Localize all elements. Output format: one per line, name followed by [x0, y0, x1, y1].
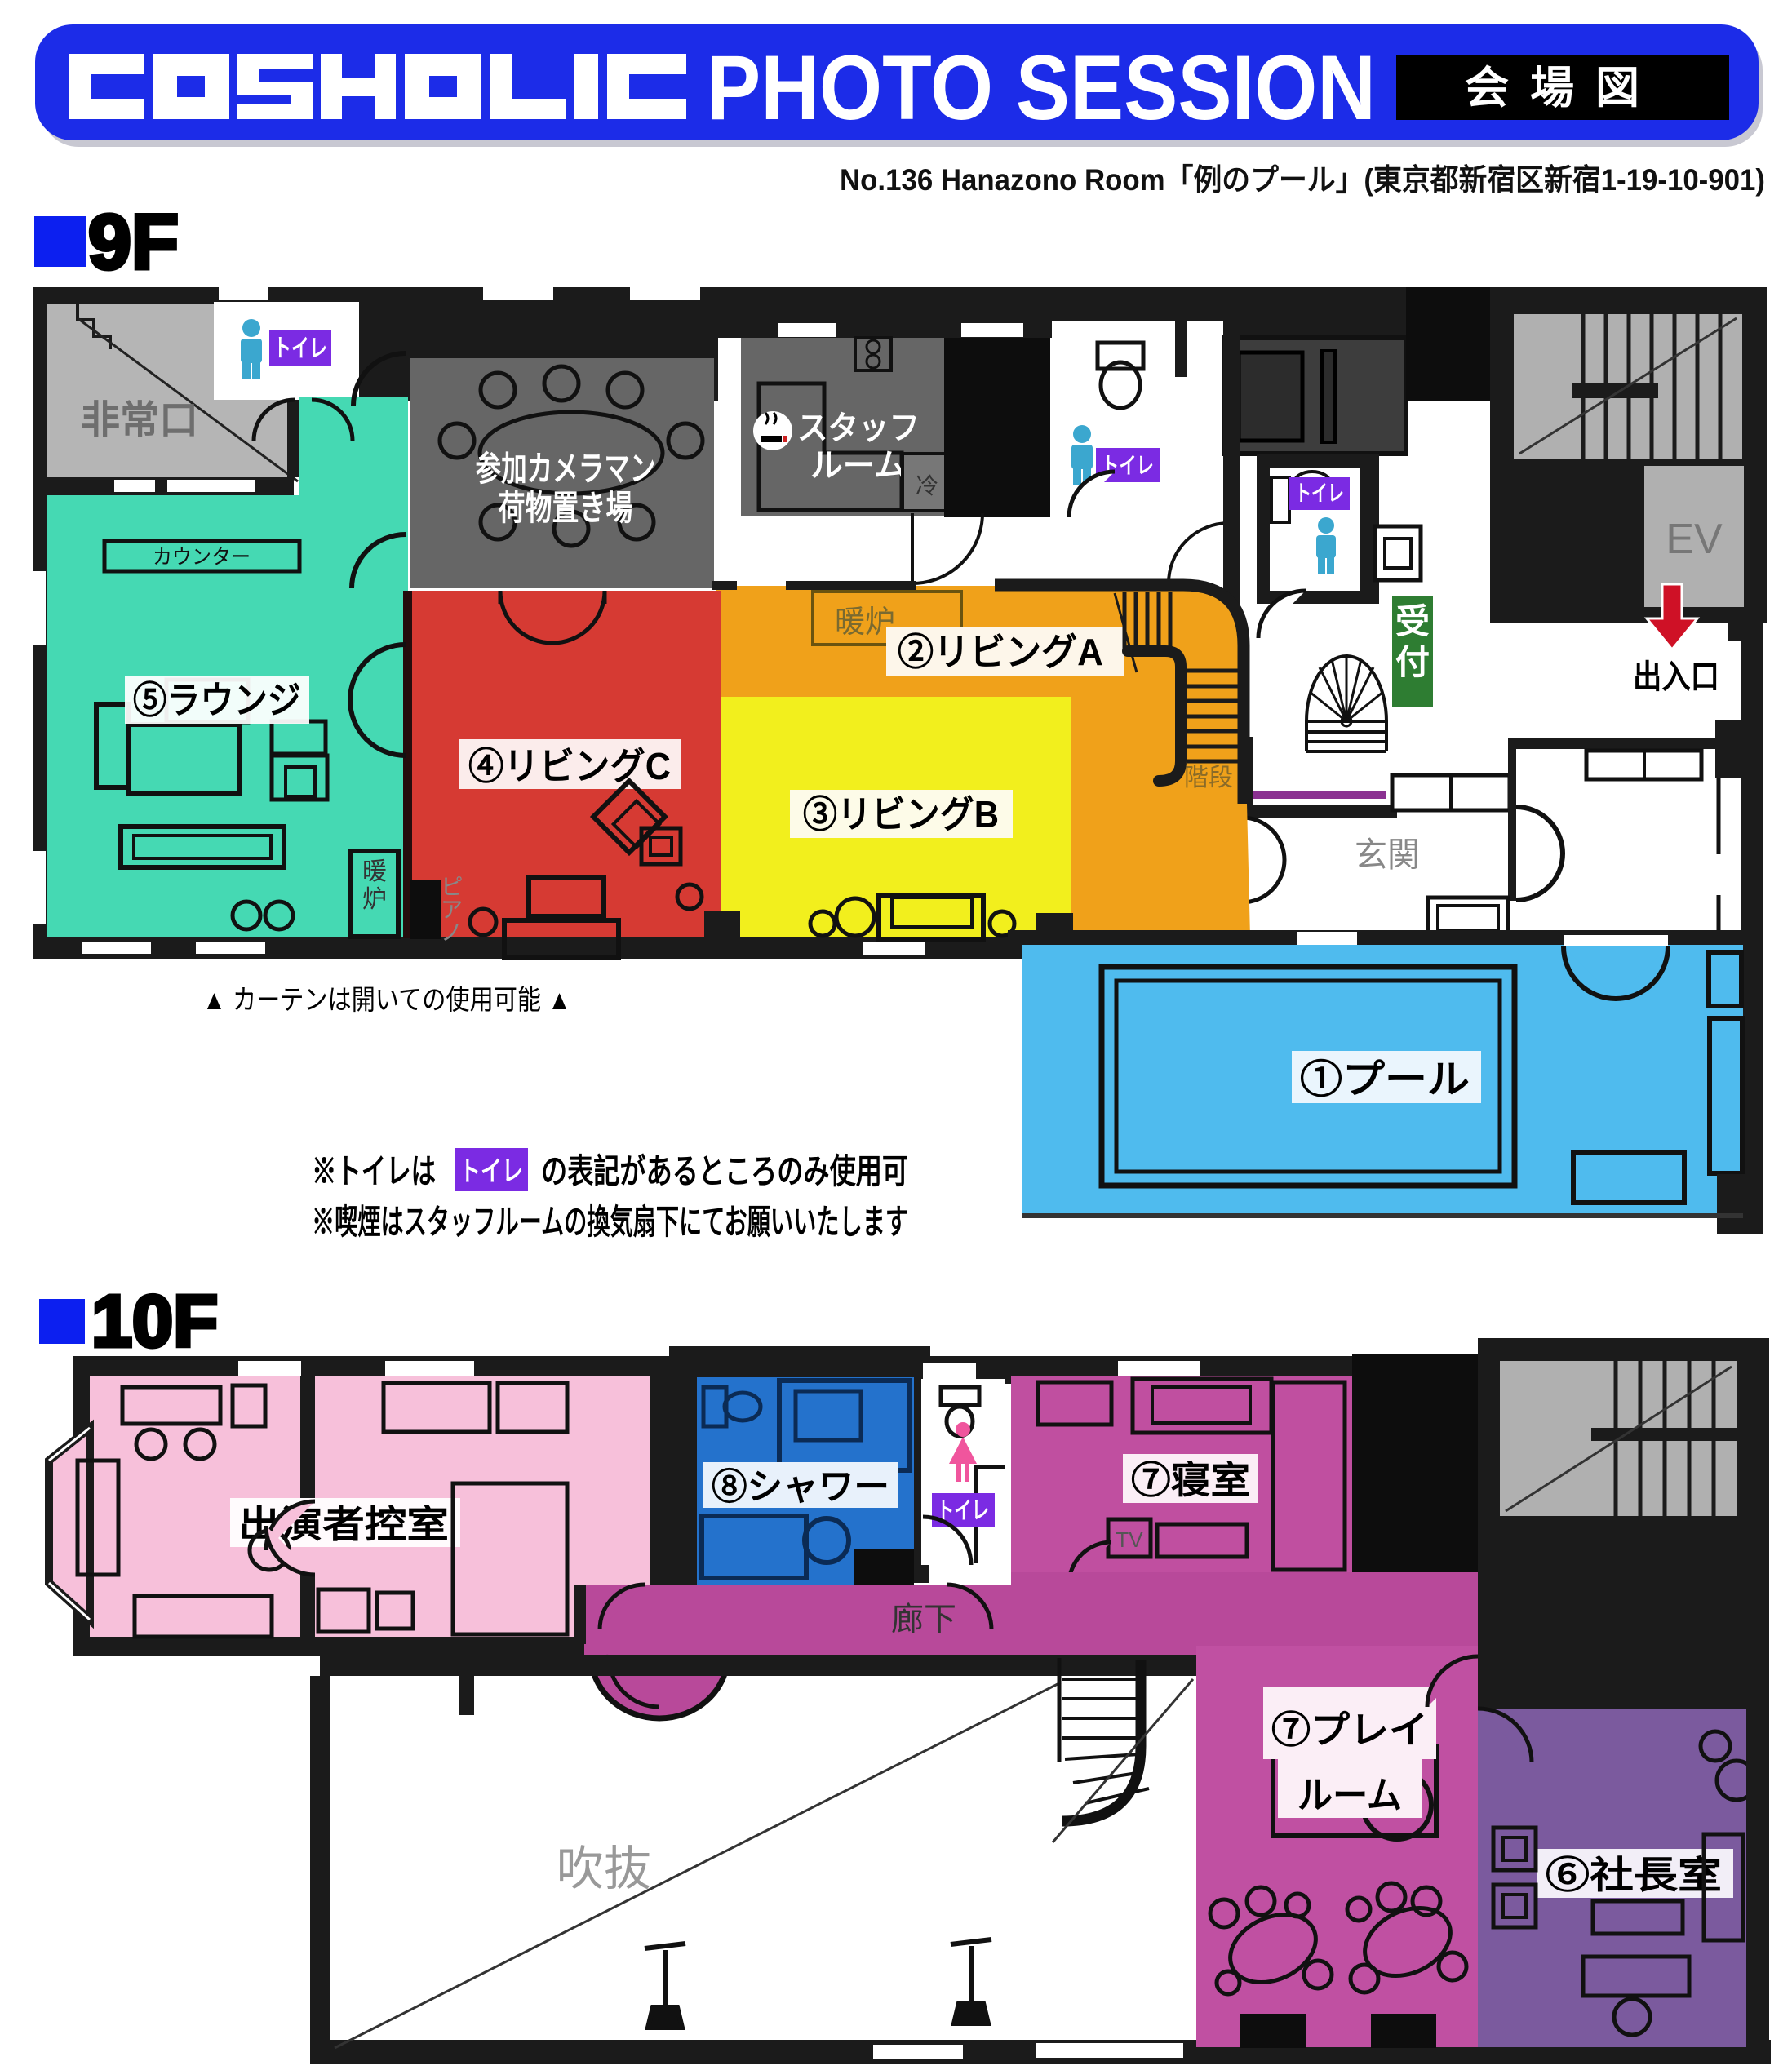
svg-text:⑥社長室: ⑥社長室 [1546, 1854, 1722, 1896]
svg-text:ピアノ: ピアノ [438, 875, 464, 943]
svg-text:カウンター: カウンター [153, 546, 251, 569]
svg-text:トイレ: トイレ [1295, 481, 1344, 506]
svg-text:出入口: 出入口 [1633, 659, 1719, 695]
svg-text:玄関: 玄関 [1355, 836, 1420, 874]
svg-text:②リビングA: ②リビングA [898, 631, 1103, 673]
svg-text:EV: EV [1666, 516, 1723, 563]
svg-text:トイレ: トイレ [459, 1156, 523, 1187]
svg-text:の表記があるところのみ使用可: の表記があるところのみ使用可 [541, 1152, 908, 1190]
svg-text:会場図: 会場図 [1465, 64, 1661, 113]
svg-text:※喫煙はスタッフルームの換気扇下にてお願いいたします: ※喫煙はスタッフルームの換気扇下にてお願いいたします [312, 1203, 908, 1241]
svg-text:受: 受 [1395, 602, 1430, 641]
svg-text:参加カメラマン: 参加カメラマン [476, 450, 656, 488]
svg-text:スタッフ: スタッフ [797, 410, 920, 446]
svg-text:トイレ: トイレ [273, 335, 327, 362]
svg-text:9F: 9F [88, 199, 179, 286]
svg-text:10F: 10F [91, 1281, 218, 1363]
svg-text:③リビングB: ③リビングB [803, 793, 999, 836]
svg-text:No.136 Hanazono Room「例のプール」(東京: No.136 Hanazono Room「例のプール」(東京都新宿区新宿1-19… [840, 163, 1765, 197]
svg-text:廊下: 廊下 [891, 1602, 956, 1638]
svg-text:冷: 冷 [916, 473, 938, 499]
svg-text:⑤ラウンジ: ⑤ラウンジ [133, 679, 301, 721]
svg-text:⑦寝室: ⑦寝室 [1131, 1459, 1250, 1501]
svg-text:TV: TV [1116, 1527, 1143, 1552]
svg-text:非常口: 非常口 [81, 399, 198, 442]
svg-text:付: 付 [1395, 643, 1430, 681]
svg-text:①プール: ①プール [1300, 1058, 1470, 1101]
svg-text:ルーム: ルーム [810, 448, 907, 484]
svg-text:⑧シャワー: ⑧シャワー [712, 1467, 889, 1507]
svg-text:暖: 暖 [362, 858, 387, 885]
svg-text:※トイレは: ※トイレは [312, 1152, 436, 1190]
svg-text:暖炉: 暖炉 [835, 605, 895, 640]
svg-text:PHOTO SESSION: PHOTO SESSION [707, 37, 1376, 139]
svg-text:⑦プレイ: ⑦プレイ [1271, 1709, 1428, 1751]
svg-text:荷物置き場: 荷物置き場 [499, 489, 633, 527]
svg-text:炉: 炉 [362, 886, 387, 913]
svg-text:▲ カーテンは開いての使用可能 ▲: ▲ カーテンは開いての使用可能 ▲ [202, 985, 571, 1016]
svg-text:吹抜: 吹抜 [557, 1842, 651, 1895]
svg-text:④リビングC: ④リビングC [468, 745, 671, 787]
svg-text:階段: 階段 [1184, 765, 1233, 791]
svg-text:ルーム: ルーム [1297, 1774, 1402, 1816]
